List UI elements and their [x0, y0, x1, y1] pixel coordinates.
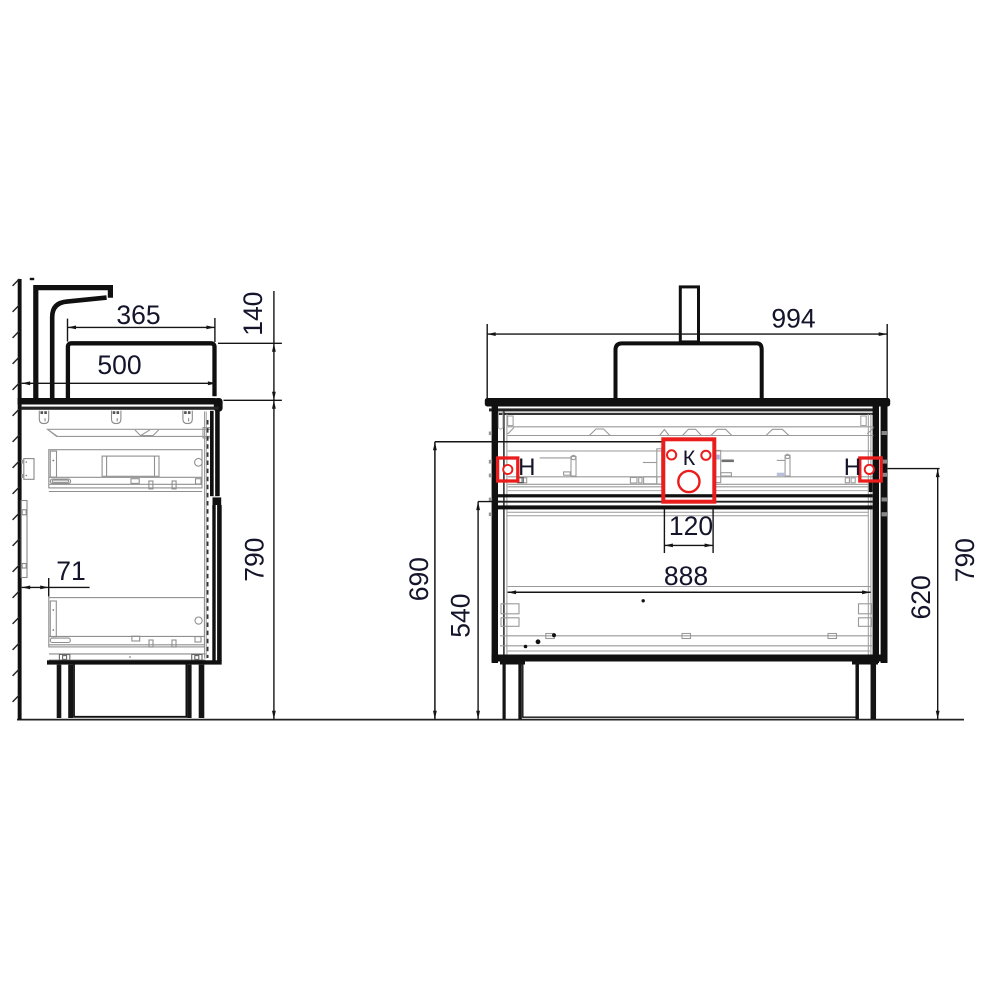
svg-text:500: 500	[97, 350, 141, 380]
svg-text:К: К	[683, 446, 696, 470]
svg-text:Н: Н	[518, 454, 535, 481]
svg-text:120: 120	[669, 511, 713, 541]
svg-text:71: 71	[56, 556, 85, 586]
svg-text:Н: Н	[844, 454, 861, 481]
svg-text:620: 620	[906, 575, 936, 619]
svg-text:888: 888	[664, 561, 708, 591]
svg-text:365: 365	[116, 300, 160, 330]
svg-text:690: 690	[404, 557, 434, 601]
svg-text:790: 790	[240, 538, 270, 582]
svg-text:540: 540	[446, 593, 476, 637]
svg-text:994: 994	[771, 303, 815, 333]
svg-text:790: 790	[950, 538, 980, 582]
svg-text:140: 140	[238, 292, 268, 336]
